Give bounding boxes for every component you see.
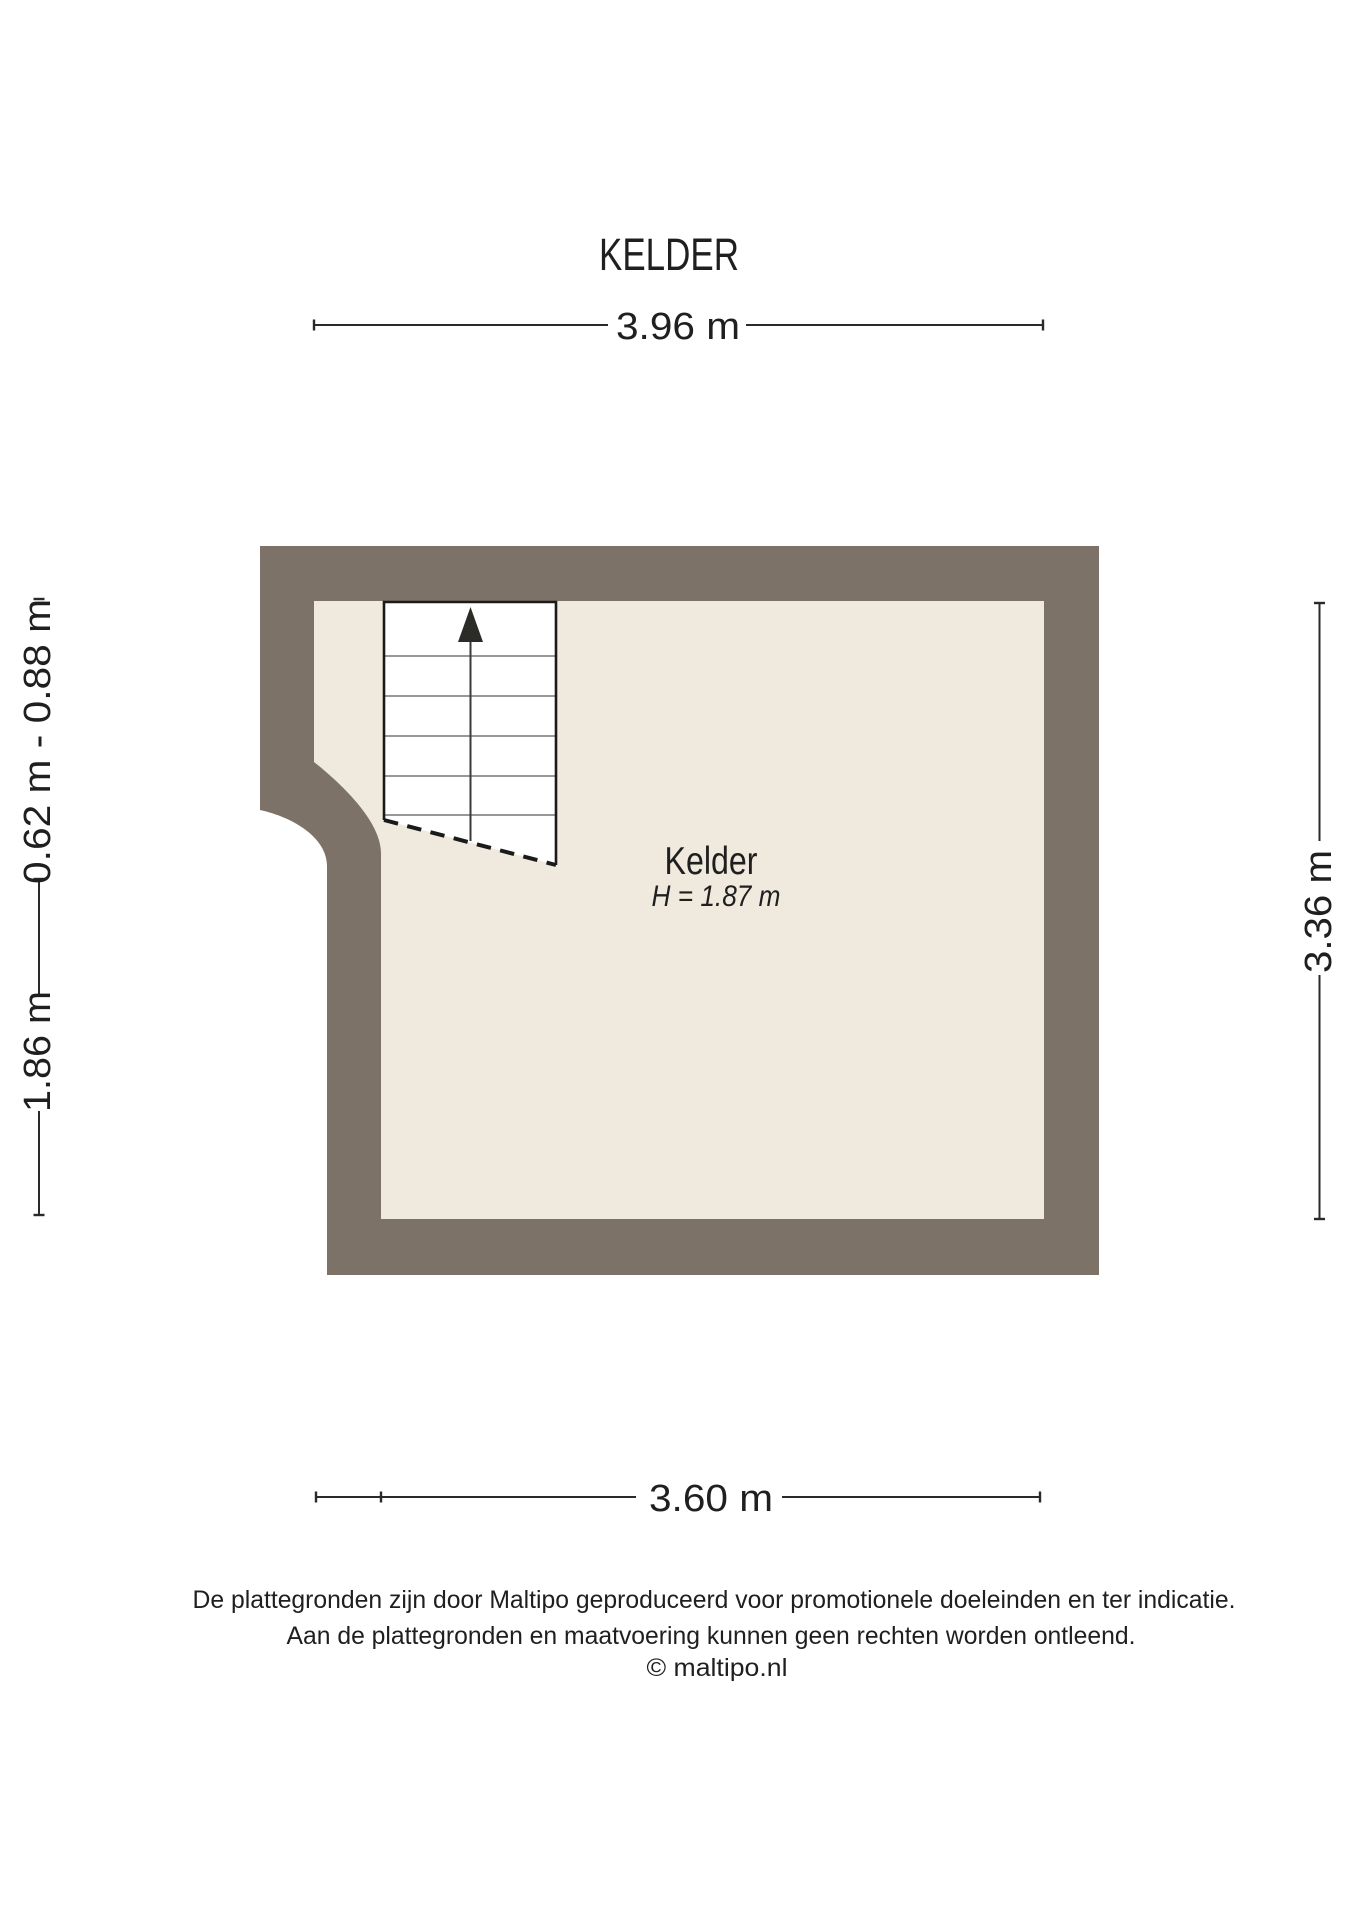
- svg-text:© maltipo.nl: © maltipo.nl: [647, 1654, 788, 1682]
- svg-text:De plattegronden zijn door Mal: De plattegronden zijn door Maltipo gepro…: [193, 1586, 1236, 1614]
- svg-text:Aan de plattegronden en maatvo: Aan de plattegronden en maatvoering kunn…: [287, 1622, 1136, 1650]
- svg-text:0.62 m - 0.88 m: 0.62 m - 0.88 m: [17, 599, 59, 884]
- svg-text:3.36 m: 3.36 m: [1298, 850, 1340, 973]
- svg-text:3.96 m: 3.96 m: [616, 306, 740, 348]
- svg-text:Kelder: Kelder: [665, 840, 758, 883]
- svg-text:3.60 m: 3.60 m: [649, 1478, 773, 1520]
- svg-text:1.86 m: 1.86 m: [17, 991, 59, 1112]
- svg-text:H = 1.87 m: H = 1.87 m: [652, 880, 781, 913]
- svg-text:KELDER: KELDER: [599, 229, 739, 280]
